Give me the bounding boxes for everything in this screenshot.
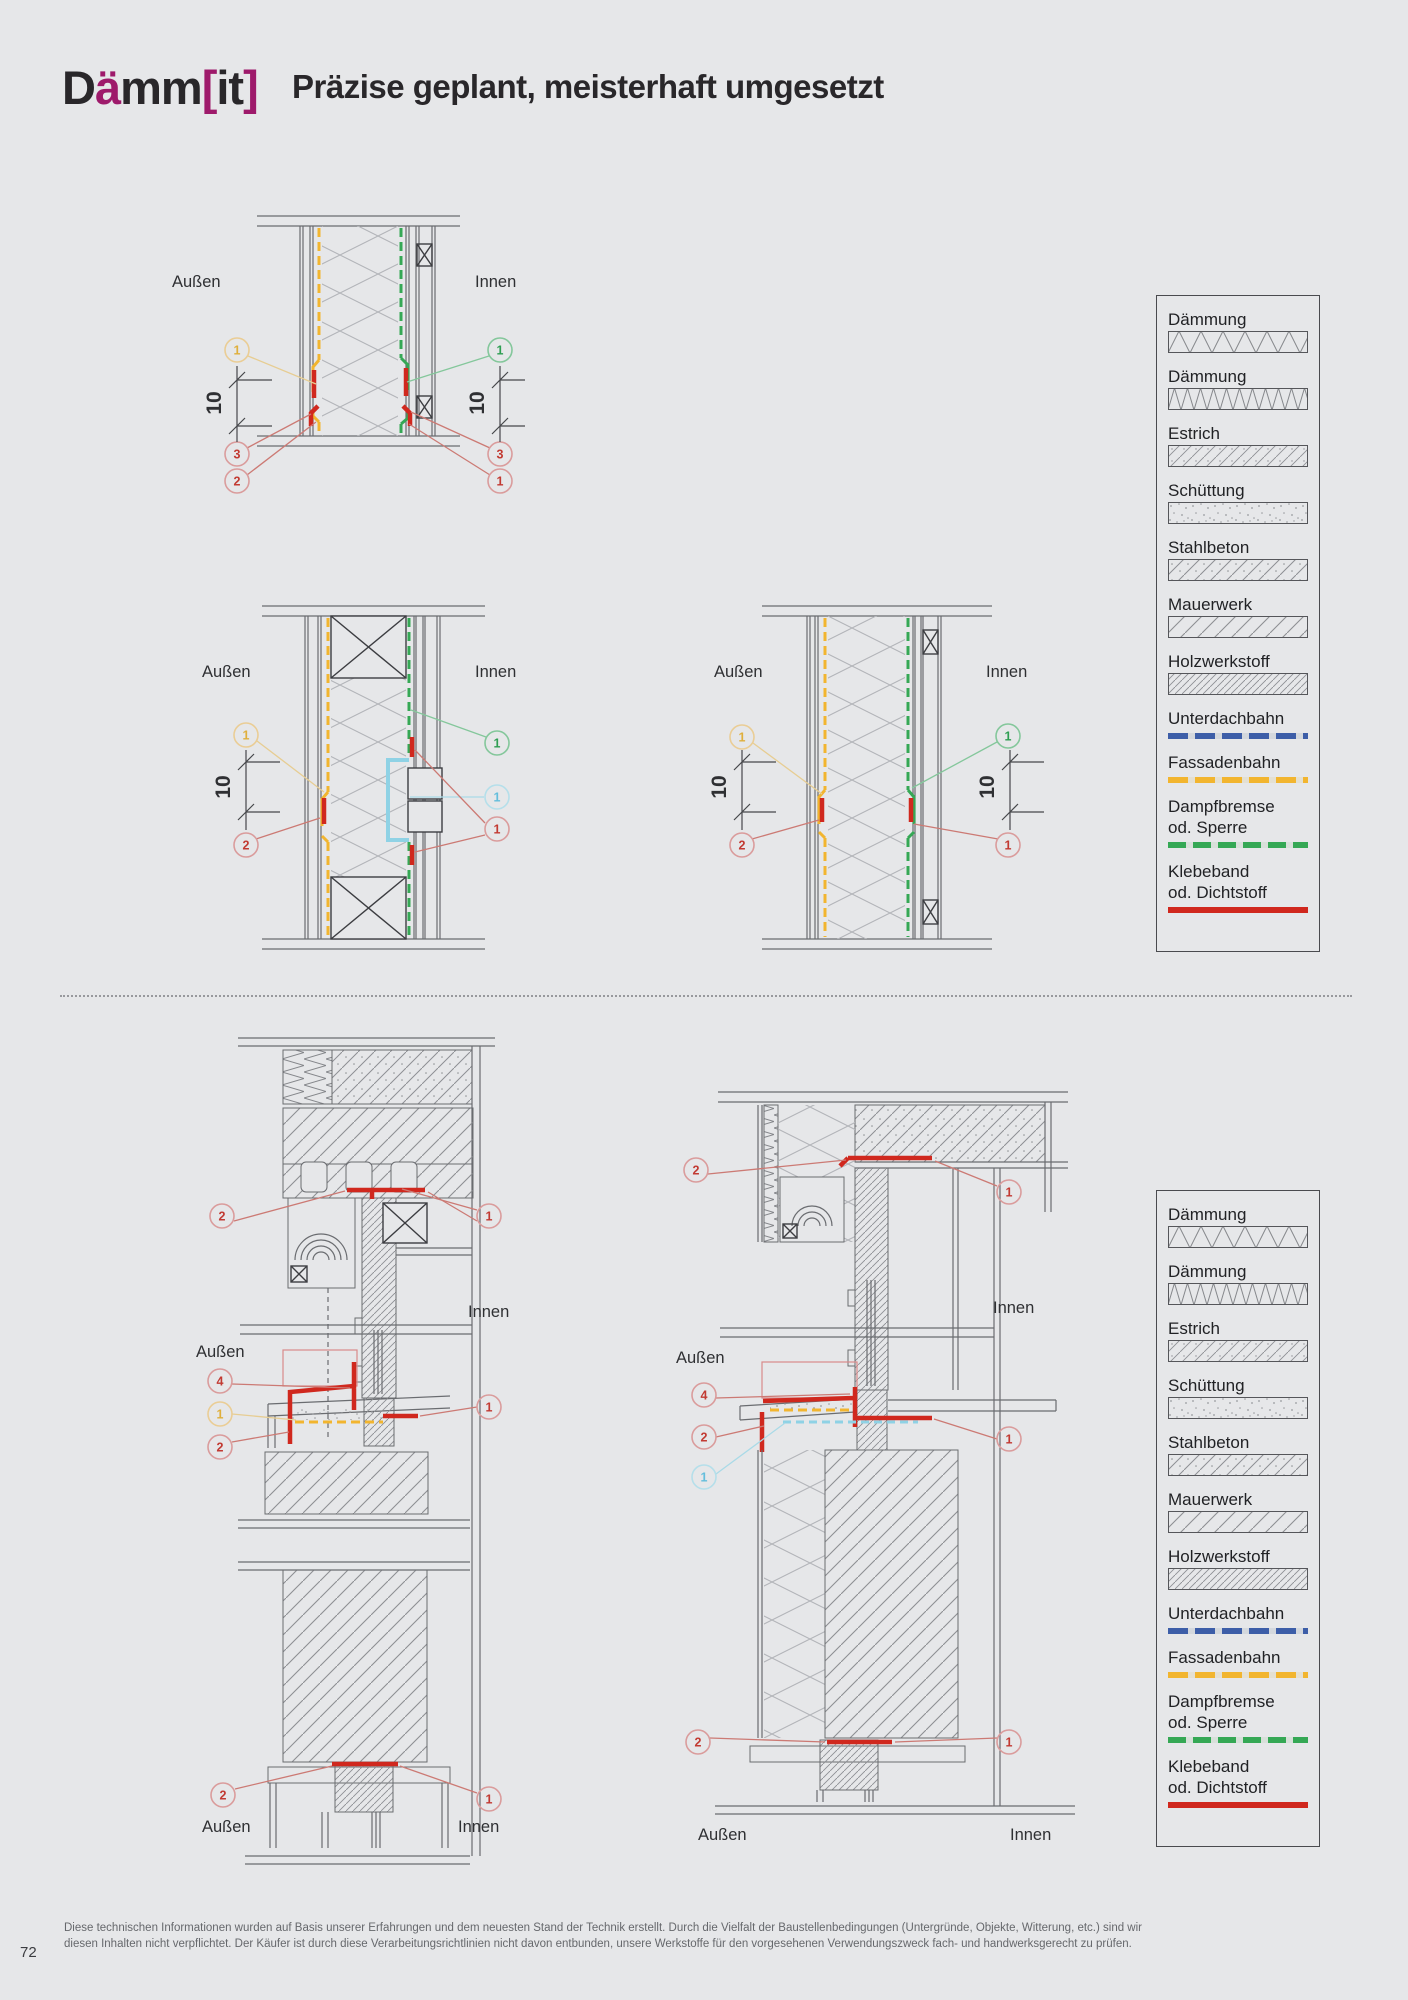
svg-text:1: 1 [1006, 1736, 1013, 1750]
callout: 2 [686, 1730, 710, 1754]
callout: 2 [684, 1158, 708, 1182]
legend-item: Schüttung [1168, 480, 1308, 524]
legend-item: Dämmung [1168, 366, 1308, 410]
svg-text:1: 1 [701, 1471, 708, 1485]
masonry-hatch [283, 1570, 427, 1762]
svg-text:3: 3 [497, 448, 504, 462]
callout: 3 [225, 442, 249, 466]
svg-text:3: 3 [234, 448, 241, 462]
page-title: Präzise geplant, meisterhaft umgesetzt [292, 68, 884, 106]
svg-text:2: 2 [693, 1164, 700, 1178]
swatch-insulation-dense-icon [1168, 1283, 1308, 1305]
legend-item: Klebebandod. Dichtstoff [1168, 861, 1308, 913]
callout: 1 [996, 724, 1020, 748]
callout: 1 [488, 338, 512, 362]
swatch-concrete-icon [1168, 559, 1308, 581]
callout: 2 [730, 833, 754, 857]
svg-text:1: 1 [486, 1210, 493, 1224]
svg-text:10: 10 [212, 775, 235, 798]
detail-region-outline [283, 1350, 357, 1386]
swatch-wood-icon [1168, 1568, 1308, 1590]
swatch-insulation-dense-icon [1168, 388, 1308, 410]
callout: 2 [225, 469, 249, 493]
diagram-wall-joint-mid: 1 2 1 1 10 10 Außen Innen [700, 590, 1120, 970]
concrete-slab-hatch [855, 1105, 1045, 1162]
label-innen: Innen [458, 1818, 499, 1836]
logo-mm: mm [120, 61, 202, 114]
legend-item: Holzwerkstoff [1168, 651, 1308, 695]
swatch-membrane-yellow-icon [1168, 777, 1308, 783]
legend-item: Fassadenbahn [1168, 752, 1308, 783]
blocking-cross [923, 630, 938, 924]
legend-item: Dämmung [1168, 1261, 1308, 1305]
svg-text:2: 2 [701, 1431, 708, 1445]
concrete-slab-hatch [332, 1050, 472, 1104]
legend-item: Stahlbeton [1168, 1432, 1308, 1476]
svg-text:10: 10 [466, 391, 489, 414]
svg-text:2: 2 [695, 1736, 702, 1750]
callout: 2 [692, 1425, 716, 1449]
page-number: 72 [20, 1944, 37, 1961]
callout: 1 [485, 731, 509, 755]
callout: 1 [730, 725, 754, 749]
legend-item: Stahlbeton [1168, 537, 1308, 581]
frame-base [335, 1762, 393, 1812]
legend-item: Dämmung [1168, 309, 1308, 353]
label-innen: Innen [993, 1299, 1034, 1317]
svg-text:1: 1 [494, 791, 501, 805]
callout: 1 [208, 1402, 232, 1426]
swatch-masonry-icon [1168, 616, 1308, 638]
svg-text:1: 1 [1006, 1186, 1013, 1200]
logo-bracket-open: [ [202, 61, 217, 114]
legend-bottom: Dämmung Dämmung Estrich Schüttung Stahlb… [1156, 1190, 1320, 1847]
svg-text:1: 1 [497, 344, 504, 358]
disclaimer-line-1: Diese technischen Informationen wurden a… [64, 1921, 1354, 1937]
svg-text:1: 1 [739, 731, 746, 745]
section-divider [60, 995, 1352, 997]
dimension-marks [229, 366, 272, 442]
svg-text:1: 1 [1006, 1433, 1013, 1447]
swatch-sealant-red-icon [1168, 907, 1308, 913]
svg-text:2: 2 [234, 475, 241, 489]
callout: 1 [996, 833, 1020, 857]
svg-text:2: 2 [219, 1210, 226, 1224]
label-innen: Innen [468, 1303, 509, 1321]
svg-text:1: 1 [486, 1401, 493, 1415]
klebeband-tape [762, 1387, 932, 1452]
insulation-strip [764, 1105, 778, 1242]
svg-text:2: 2 [220, 1789, 227, 1803]
logo-auml: ä [95, 61, 120, 114]
label-aussen: Außen [196, 1343, 245, 1361]
legend-item: Holzwerkstoff [1168, 1546, 1308, 1590]
swatch-membrane-blue-icon [1168, 733, 1308, 739]
callout: 1 [485, 817, 509, 841]
legend-item: Estrich [1168, 1318, 1308, 1362]
swatch-membrane-yellow-icon [1168, 1672, 1308, 1678]
label-aussen: Außen [698, 1826, 747, 1844]
callout: 3 [488, 442, 512, 466]
logo-it: it [216, 61, 243, 114]
svg-text:10: 10 [976, 775, 999, 798]
swatch-masonry-icon [1168, 1511, 1308, 1533]
diagram-wall-joint-top: 1 3 2 1 3 1 10 10 Außen Innen [150, 160, 530, 505]
legend-item: Fassadenbahn [1168, 1647, 1308, 1678]
callout: 1 [488, 469, 512, 493]
swatch-screed-icon [1168, 1340, 1308, 1362]
svg-text:1: 1 [217, 1408, 224, 1422]
legend-item: Estrich [1168, 423, 1308, 467]
legend-item: Schüttung [1168, 1375, 1308, 1419]
callout: 2 [234, 833, 258, 857]
diagram-window-detail-right: 2 1 Innen Außen 4 2 1 1 2 1 Außen Innen [620, 1050, 1120, 1850]
svg-text:1: 1 [486, 1793, 493, 1807]
klebeband-tape [290, 1362, 418, 1444]
dimension-marks [238, 750, 280, 830]
swatch-membrane-green-icon [1168, 1737, 1308, 1743]
callout: 1 [485, 785, 509, 809]
swatch-sealant-red-icon [1168, 1802, 1308, 1808]
legend-top: Dämmung Dämmung Estrich Schüttung Stahlb… [1156, 295, 1320, 952]
swatch-concrete-icon [1168, 1454, 1308, 1476]
swatch-insulation-wide-icon [1168, 331, 1308, 353]
callout: 1 [234, 723, 258, 747]
swatch-wood-icon [1168, 673, 1308, 695]
insulation-hatch [828, 616, 905, 939]
brand-logo: Dämm[it] [62, 60, 258, 115]
label-aussen: Außen [172, 273, 221, 291]
diagram-window-detail-left: 2 1 Innen Außen 4 1 2 1 2 1 Außen Innen [150, 1020, 580, 1880]
svg-text:2: 2 [243, 839, 250, 853]
logo-bracket-close: ] [243, 61, 258, 114]
svg-text:1: 1 [1005, 839, 1012, 853]
insulation-strip [283, 1050, 332, 1104]
callout: 2 [210, 1204, 234, 1228]
label-aussen: Außen [714, 663, 763, 681]
page: Dämm[it] Präzise geplant, meisterhaft um… [0, 0, 1408, 2000]
label-aussen: Außen [202, 1818, 251, 1836]
svg-text:1: 1 [1005, 730, 1012, 744]
detail-region-outline [762, 1362, 857, 1398]
masonry-hatch [825, 1450, 958, 1738]
legend-item: Klebebandod. Dichtstoff [1168, 1756, 1308, 1808]
callout: 2 [211, 1783, 235, 1807]
masonry-hatch [265, 1452, 428, 1514]
label-innen: Innen [475, 663, 516, 681]
callout: 4 [208, 1369, 232, 1393]
brick-channels [301, 1162, 417, 1192]
legend-item: Dämmung [1168, 1204, 1308, 1248]
label-innen: Innen [475, 273, 516, 291]
frame-base [820, 1740, 878, 1790]
lintel-hatch [283, 1108, 473, 1164]
label-innen: Innen [986, 663, 1027, 681]
legend-item: Mauerwerk [1168, 1489, 1308, 1533]
insulation-hatch [322, 226, 398, 436]
blocking-cross [383, 1203, 427, 1243]
label-aussen: Außen [676, 1349, 725, 1367]
svg-text:4: 4 [701, 1389, 708, 1403]
label-innen: Innen [1010, 1826, 1051, 1844]
swatch-fill-icon [1168, 502, 1308, 524]
logo-d: D [62, 61, 95, 114]
footer-disclaimer: Diese technischen Informationen wurden a… [64, 1921, 1354, 1952]
swatch-insulation-wide-icon [1168, 1226, 1308, 1248]
svg-text:4: 4 [217, 1375, 224, 1389]
label-aussen: Außen [202, 663, 251, 681]
callout: 1 [692, 1465, 716, 1489]
svg-text:1: 1 [497, 475, 504, 489]
legend-item: Unterdachbahn [1168, 708, 1308, 739]
swatch-screed-icon [1168, 445, 1308, 467]
disclaimer-line-2: diesen Inhalten nicht verpflichtet. Der … [64, 1937, 1354, 1953]
legend-item: Unterdachbahn [1168, 1603, 1308, 1634]
callout: 4 [692, 1383, 716, 1407]
svg-text:10: 10 [708, 775, 731, 798]
swatch-membrane-green-icon [1168, 842, 1308, 848]
swatch-membrane-blue-icon [1168, 1628, 1308, 1634]
legend-item: Mauerwerk [1168, 594, 1308, 638]
swatch-fill-icon [1168, 1397, 1308, 1419]
svg-text:2: 2 [739, 839, 746, 853]
dimension-label: 10 [203, 391, 226, 414]
legend-item: Dampfbremseod. Sperre [1168, 1691, 1308, 1743]
callout: 2 [208, 1435, 232, 1459]
callout: 1 [225, 338, 249, 362]
fill-stipple [290, 1408, 383, 1420]
legend-item: Dampfbremseod. Sperre [1168, 796, 1308, 848]
insulation-hatch [764, 1450, 825, 1738]
diagram-wall-socket: 1 2 1 1 1 10 Außen Innen [150, 590, 570, 970]
svg-text:1: 1 [494, 737, 501, 751]
svg-text:2: 2 [217, 1441, 224, 1455]
svg-text:1: 1 [234, 344, 241, 358]
svg-text:1: 1 [243, 729, 250, 743]
svg-text:1: 1 [494, 823, 501, 837]
